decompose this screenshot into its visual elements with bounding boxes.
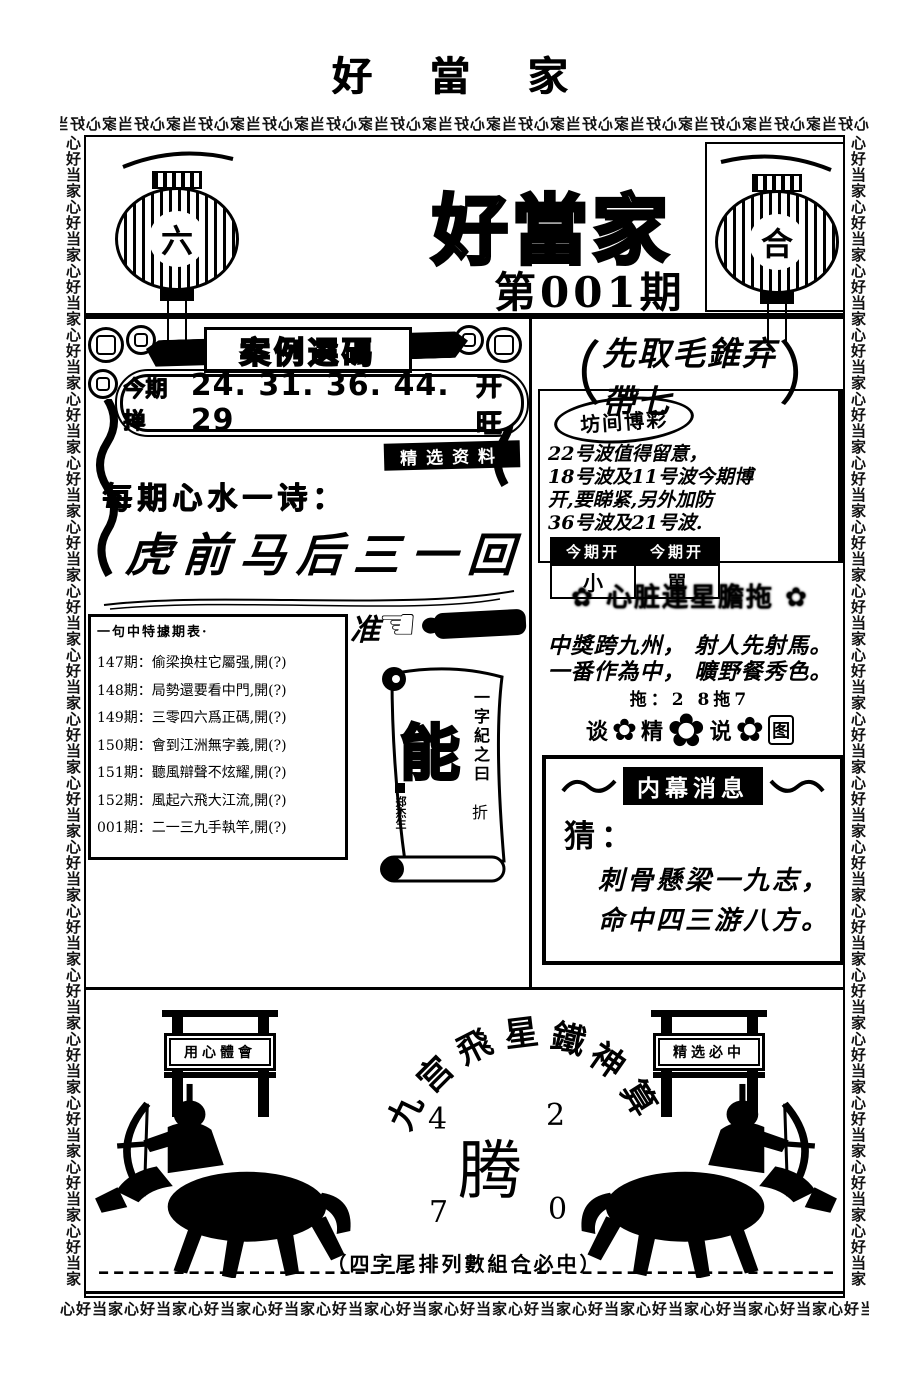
list-item: 147期：偷梁换柱它屬强,開(?) [97, 650, 339, 678]
content-area: 六 好當家 第001期 合 [84, 135, 845, 1298]
pill-result: 开旺 [476, 366, 522, 440]
frame-bottom-pattern: 心好当家心好当家心好当家心好当家心好当家心好当家心好当家心好当家心好当家心好当家… [60, 1298, 869, 1322]
advice-box: 坊间博彩 22号波值得留意， 18号波及11号波今期博 开,要睇紧,另外加防 3… [538, 389, 844, 563]
flower-icon: ✿ [612, 713, 637, 748]
flower-icon: ✿ [571, 583, 595, 613]
swoosh-lines [100, 585, 520, 613]
gate-bar [162, 1010, 278, 1017]
verse-line: 中獎跨九州， 射人先射馬。 [534, 633, 846, 659]
flower-icon: ✿ [736, 710, 765, 750]
gate-bar [653, 1072, 765, 1078]
verse: 中獎跨九州， 射人先射馬。 一番作為中， 曠野餐秀色。 [534, 633, 846, 685]
gate-bar [651, 1010, 767, 1017]
heart-poem-label: 每期心水一诗： [102, 473, 347, 517]
list-item: 152期：風起六飛大江流,開(?) [97, 788, 339, 816]
gate-bar [164, 1072, 276, 1078]
tip-sheet-page: 好 當 家 心好当家心好当家心好当家心好当家心好当家心好当家心好当家心好当家心好… [0, 0, 921, 1388]
list-header: 一句中特據期表· [97, 621, 339, 640]
guess-line: 命中四三游八方。 [598, 901, 830, 941]
frame-left-pattern: 心好当家心好当家心好当家心好当家心好当家心好当家心好当家心好当家心好当家心好当家… [60, 135, 84, 1298]
list-item: 001期：二一三九手執竿,開(?) [97, 815, 339, 843]
list-item: 148期：局勢還要看中門,開(?) [97, 678, 339, 706]
inside-info-title: 内幕消息 [623, 767, 763, 805]
verse-line: 一番作為中， 曠野餐秀色。 [534, 659, 846, 685]
pill-numbers: 24. 31. 36. 44. 29 [191, 368, 466, 438]
masthead-issue: 第001期 [494, 259, 686, 320]
decorative-header: ✿ 心脏連星膽拖 ✿ [534, 577, 846, 614]
inside-info-box: 内幕消息 猜： 刺骨懸梁一九志， 命中四三游八方。 [542, 755, 844, 965]
pointer-char: 准 [350, 605, 380, 649]
ink-smudge [433, 609, 526, 640]
issue-list: 147期：偷梁换柱它屬强,開(?) 148期：局勢還要看中門,開(?) 149期… [97, 650, 339, 843]
grid-number-top-right: 2 [546, 1098, 565, 1133]
coin-icon [88, 369, 118, 399]
decorative-frame: 心好当家心好当家心好当家心好当家心好当家心好当家心好当家心好当家心好当家心好当家… [60, 113, 869, 1322]
frame-right-pattern: 心好当家心好当家心好当家心好当家心好当家心好当家心好当家心好当家心好当家心好当家… [845, 135, 869, 1298]
list-item: 149期：三零四六爲正碼,開(?) [97, 705, 339, 733]
guess-line: 刺骨懸梁一九志， [598, 861, 830, 901]
left-gate-sign: 用心體會 [164, 1033, 276, 1071]
ribbon-swirl-icon [769, 775, 825, 797]
pill-label: 今期掸 [123, 371, 181, 435]
list-item: 151期：聽風辯聲不炫耀,開(?) [97, 760, 339, 788]
scroll-fold-char: 折 [472, 799, 488, 823]
flower-icon: ✿ [667, 703, 706, 757]
inside-info-header: 内幕消息 [546, 767, 840, 805]
guess-label: 猜： [564, 811, 638, 856]
grid-number-bottom-left: 7 [429, 1195, 448, 1230]
scroll-signature: 郑杰生 [392, 783, 408, 829]
grid-number-top-left: 4 [428, 1102, 447, 1137]
page-title: 好 當 家 [0, 44, 921, 102]
arc-char: 飛 [447, 1015, 500, 1074]
banner-title: 案例選碼 [240, 328, 376, 372]
lantern-char-left: 六 [149, 211, 205, 267]
header-divider [86, 313, 843, 319]
advice-line: 18号波及11号波今期博 [548, 466, 753, 489]
stamp-oval: 坊间博彩 [553, 392, 696, 448]
advice-line: 22号波值得留意， [548, 443, 753, 466]
bottom-caption: （四字尾排列數組合必中） [86, 1248, 843, 1277]
selected-info-badge: 精选资料 [384, 440, 521, 471]
frame-top-pattern: 心好当家心好当家心好当家心好当家心好当家心好当家心好当家心好当家心好当家心好当家… [60, 113, 869, 135]
coin-icon [88, 327, 124, 363]
scroll-graphic: 一字紀之曰 折 能 郑杰生 [366, 657, 518, 895]
coin-icon [486, 327, 522, 363]
list-item: 150期：會到江洲無字義,開(?) [97, 733, 339, 761]
guess-lines: 刺骨懸梁一九志， 命中四三游八方。 [598, 861, 830, 941]
banner-title-box: 案例選碼 [204, 327, 412, 373]
advice-text: 22号波值得留意， 18号波及11号波今期博 开,要睇紧,另外加防 36号波及2… [548, 443, 753, 535]
arc-char: 鐵 [547, 1009, 592, 1065]
flower-icon: ✿ [785, 583, 809, 613]
flower-row-char: 谈 [586, 714, 608, 746]
numbers-pill: 今期掸 24. 31. 36. 44. 29 开旺 [120, 374, 524, 432]
grid-number-bottom-right: 0 [548, 1192, 567, 1227]
deco-header-text: 心脏連星膽拖 [606, 583, 774, 613]
lantern-char-right: 合 [749, 214, 805, 270]
advice-line: 36号波及21号波. [548, 512, 753, 535]
table-header: 今期开 [551, 538, 635, 565]
flower-row-char: 精 [641, 714, 663, 746]
grid-center-char: 腾 [458, 1120, 522, 1212]
column-divider [529, 319, 532, 987]
arc-char: 星 [501, 1004, 541, 1057]
heart-poem: 虎前马后三一回 [124, 519, 528, 585]
pointing-hand-icon: ☜ [378, 599, 417, 650]
ribbon-swirl-icon [561, 775, 617, 797]
special-list-box: 一句中特據期表· 147期：偷梁换柱它屬强,開(?) 148期：局勢還要看中門,… [88, 614, 348, 860]
left-gate-sign-text: 用心體會 [169, 1038, 271, 1066]
scroll-side-text: 一字紀之曰 [468, 689, 492, 784]
flower-row-char: 图 [768, 715, 794, 745]
right-gate-sign-text: 精选必中 [658, 1038, 760, 1066]
advice-line: 开,要睇紧,另外加防 [548, 489, 753, 512]
right-gate-sign: 精选必中 [653, 1033, 765, 1071]
flower-row: 谈 ✿ 精 ✿ 说 ✿ 图 [534, 703, 846, 757]
flower-row-char: 说 [710, 714, 732, 746]
lantern-right-box: 合 [705, 142, 845, 312]
bottom-section: 用心體會 精选必中 九 宫 飛 星 鐵 [86, 987, 843, 1294]
table-header: 今期开 [635, 538, 719, 565]
scroll-big-char: 能 [400, 705, 460, 792]
